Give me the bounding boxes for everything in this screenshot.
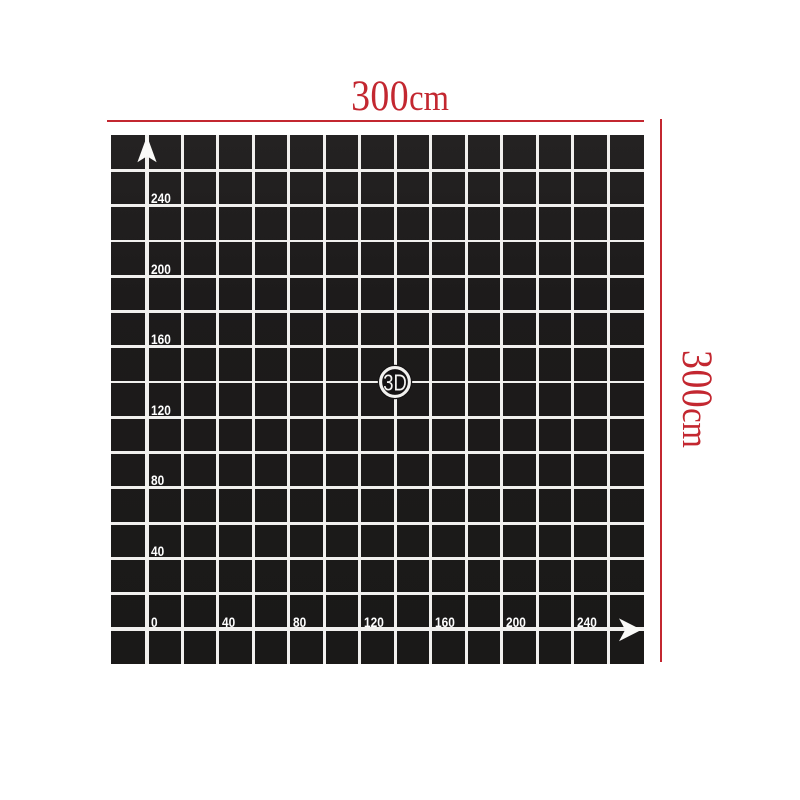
svg-text:240: 240 [577,614,597,630]
svg-text:200: 200 [506,614,526,630]
svg-text:120: 120 [151,402,171,418]
svg-text:160: 160 [151,332,171,348]
svg-text:0: 0 [151,614,158,630]
svg-text:80: 80 [151,473,164,489]
svg-text:80: 80 [293,614,306,630]
svg-text:200: 200 [151,261,171,277]
svg-text:240: 240 [151,191,171,207]
svg-text:120: 120 [364,614,384,630]
svg-text:3D: 3D [383,370,407,395]
svg-text:40: 40 [151,543,164,559]
svg-text:40: 40 [222,614,235,630]
svg-text:160: 160 [435,614,455,630]
